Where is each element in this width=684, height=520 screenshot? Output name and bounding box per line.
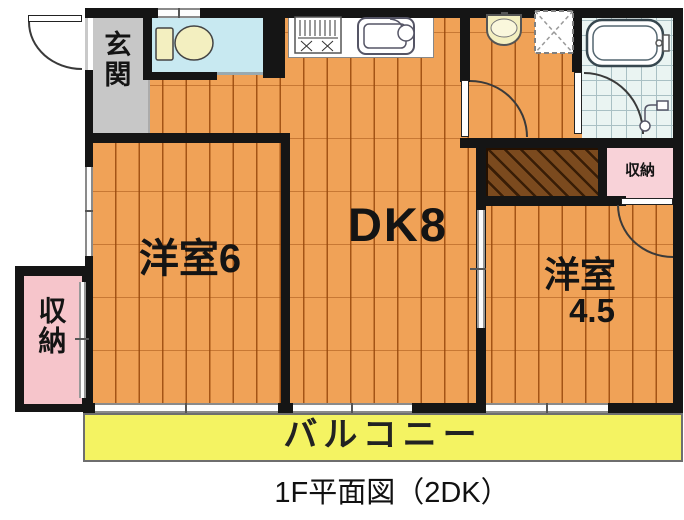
window-tick — [546, 403, 548, 413]
bathtub-icon — [585, 18, 671, 70]
wall — [85, 143, 93, 167]
genkan-label: 玄関 — [101, 30, 129, 90]
washbasin-icon — [482, 12, 528, 52]
sink-icon — [356, 14, 426, 58]
shower-icon — [636, 98, 672, 134]
window-tick — [351, 403, 353, 413]
washroom-door-leaf — [461, 80, 469, 137]
wall — [85, 133, 290, 143]
west-room-45-size-label: 4.5 — [510, 294, 674, 329]
bathroom-door-leaf — [574, 72, 582, 134]
balcony-label: バルコニー — [83, 418, 683, 454]
wall — [460, 138, 683, 148]
wall — [412, 403, 486, 413]
window-tick — [85, 210, 93, 212]
wall — [476, 196, 626, 206]
floor-plan: 玄関 DK8 洋室6 洋室 4.5 収納 収納 バルコニー 1F平面図（2DK） — [0, 0, 684, 520]
sliding-door-marker — [79, 282, 86, 398]
toilet-icon — [154, 20, 254, 70]
stove-icon — [294, 14, 344, 56]
dk-label: DK8 — [318, 200, 478, 249]
wall — [281, 143, 290, 403]
wall — [263, 8, 285, 78]
wall — [598, 148, 607, 198]
sliding-door-tick — [470, 268, 486, 270]
window-tick — [185, 403, 187, 413]
washing-machine-icon — [532, 8, 576, 56]
wall — [460, 8, 470, 82]
west-room-45-name-label: 洋室 — [498, 256, 662, 294]
door-arc — [28, 22, 82, 70]
wall — [83, 403, 95, 413]
closet-hatched-area — [486, 148, 602, 198]
wall — [85, 256, 93, 403]
plan-caption: 1F平面図（2DK） — [90, 478, 684, 508]
entrance-door-leaf — [28, 15, 82, 22]
wall — [143, 8, 152, 80]
wall — [278, 403, 293, 413]
storage-left-label: 収納 — [36, 296, 65, 356]
storage-right-label: 収納 — [607, 163, 673, 179]
entrance-jamb — [85, 18, 88, 70]
toilet-door-opening — [217, 72, 263, 75]
wall — [152, 72, 217, 80]
west-room-6-label: 洋室6 — [105, 238, 275, 280]
sliding-door-tick — [75, 338, 89, 340]
storage-door-leaf — [621, 198, 673, 205]
wall — [608, 403, 683, 413]
wall — [673, 8, 683, 413]
window-tick — [178, 8, 180, 18]
